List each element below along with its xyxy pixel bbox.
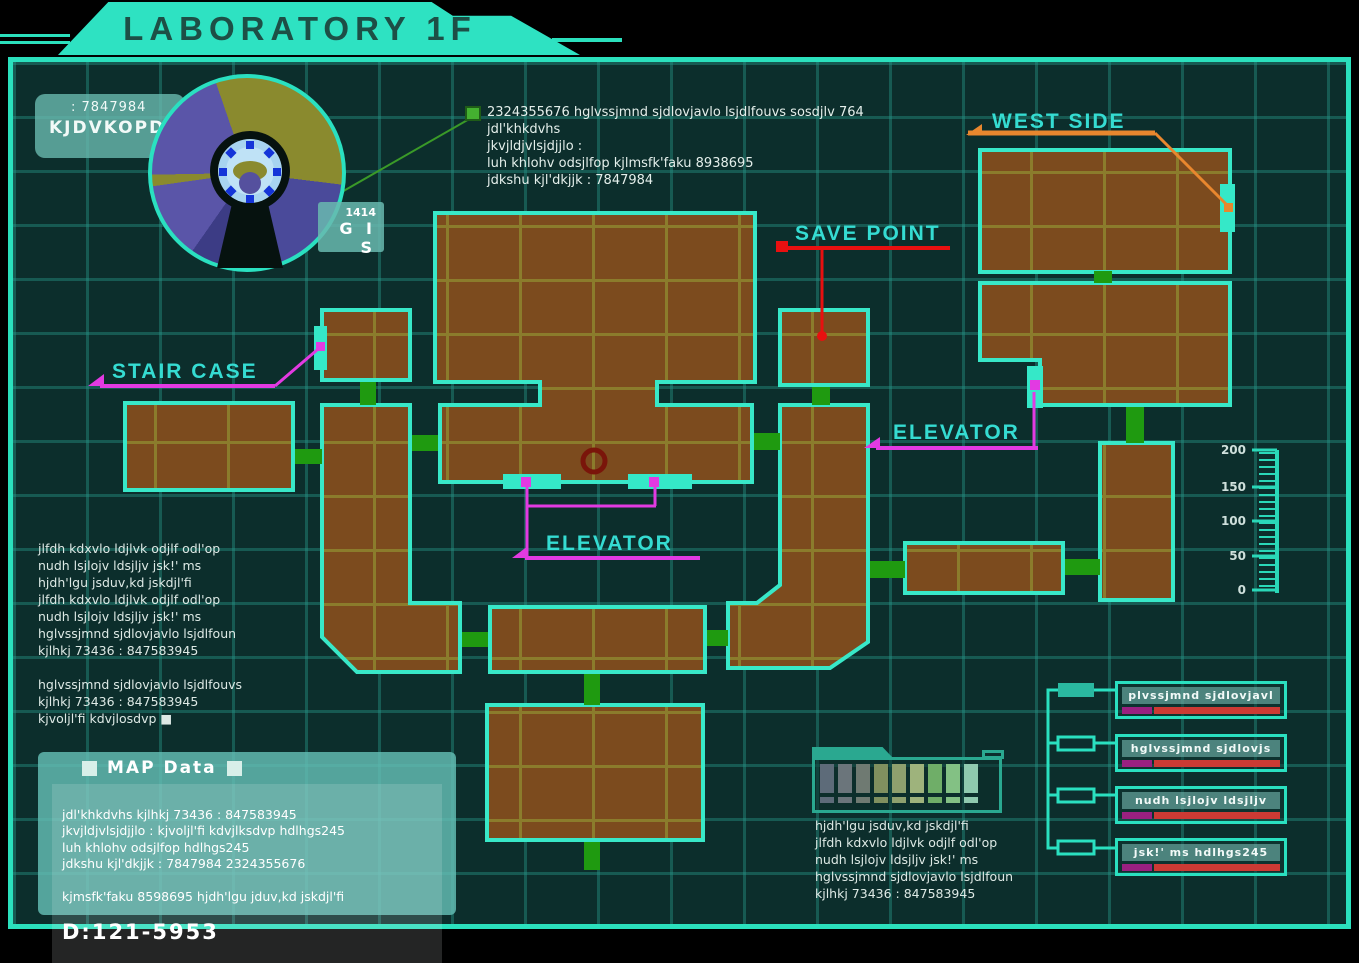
- radar-dial-pupil: [239, 172, 261, 194]
- banner-flank-line-left-1: [0, 34, 70, 37]
- radar-tick-n: [246, 141, 254, 149]
- stair-case-door-dot: [316, 342, 325, 351]
- legend-item: plvssjmnd sjdlovjavl: [1115, 681, 1287, 719]
- center-elevator-door-marker-2: [628, 474, 692, 489]
- room-stair-case: [322, 310, 410, 380]
- room-east-horizontal: [905, 543, 1063, 593]
- gis-badge-value: 1414: [318, 206, 376, 219]
- legend-item-bar: [1122, 760, 1280, 767]
- annotation-text: 2324355676 hglvssjmnd sjdlovjavlo lsjdlf…: [487, 104, 947, 189]
- legend-bar-red: [1154, 760, 1280, 767]
- legend-item: nudh lsjlojv ldsjljv: [1115, 786, 1287, 824]
- palette-swatch: [856, 797, 870, 803]
- palette-swatch: [874, 797, 888, 803]
- legend-item-label: nudh lsjlojv ldsjljv: [1122, 792, 1280, 809]
- map-data-body: jdl'khkdvhs kjlhkj 73436 : 847583945 jkv…: [52, 784, 442, 963]
- radar-keyhole-wedge: [217, 200, 283, 268]
- legend-item-bar: [1122, 864, 1280, 871]
- legend-bar-red: [1154, 812, 1280, 819]
- room-east-vertical: [1100, 443, 1173, 600]
- map-data-panel: MAP Data jdl'khkdvhs kjlhkj 73436 : 8475…: [38, 752, 456, 915]
- palette-swatch: [874, 764, 888, 793]
- palette-swatch: [892, 764, 906, 793]
- square-bullet-icon: [227, 761, 242, 776]
- radar-tick-e: [273, 168, 281, 176]
- label-stair-case: STAIR CASE: [112, 360, 258, 384]
- palette-swatch: [838, 764, 852, 793]
- room-bottom-lower: [487, 705, 703, 840]
- map-data-heading-text: MAP Data: [107, 758, 217, 778]
- map-data-id: D:121-5953: [62, 924, 432, 941]
- ruler-label-150: 150: [1208, 480, 1246, 494]
- room-far-left: [125, 403, 293, 490]
- ruler-label-100: 100: [1208, 514, 1246, 528]
- palette-swatch: [946, 797, 960, 803]
- gis-badge-label: G I S: [318, 219, 376, 257]
- banner-flank-line-left-2: [0, 41, 70, 44]
- legend-item: jsk!' ms hdlhgs245: [1115, 838, 1287, 876]
- label-save-point: SAVE POINT: [795, 222, 941, 246]
- legend-bar-purple: [1122, 760, 1152, 767]
- room-bottom-center: [490, 607, 705, 672]
- radar-tick-w: [219, 168, 227, 176]
- map-data-lines: jdl'khkdvhs kjlhkj 73436 : 847583945 jkv…: [62, 807, 432, 906]
- square-bullet-icon: [82, 761, 97, 776]
- palette-swatch: [892, 797, 906, 803]
- legend-bar-red: [1154, 864, 1280, 871]
- palette-swatch: [946, 764, 960, 793]
- palette-swatch: [928, 764, 942, 793]
- room-west-top: [980, 150, 1230, 272]
- legend-item-label: hglvssjmnd sjdlovjs: [1122, 740, 1280, 757]
- label-elevator-center: ELEVATOR: [546, 532, 673, 556]
- center-elevator-door-marker-1: [503, 474, 561, 489]
- legend-bar-purple: [1122, 812, 1152, 819]
- palette-swatch: [964, 764, 978, 793]
- ruler-label-200: 200: [1208, 443, 1246, 457]
- legend-item-label: jsk!' ms hdlhgs245: [1122, 844, 1280, 861]
- banner-flank-line-right: [552, 38, 622, 42]
- scale-ruler-minor-ticks: [1259, 452, 1276, 590]
- palette-swatch: [820, 797, 834, 803]
- palette-swatch: [910, 797, 924, 803]
- legend-item-bar: [1122, 707, 1280, 714]
- radar-tick-s: [246, 195, 254, 203]
- palette-swatch: [928, 797, 942, 803]
- page-title: LABORATORY 1F: [123, 10, 507, 48]
- left-info-text: jlfdh kdxvlo ldjlvk odjlf odl'op nudh ls…: [38, 540, 338, 727]
- room-save-point: [780, 310, 868, 385]
- label-west-side: WEST SIDE: [992, 110, 1126, 134]
- palette-swatch: [820, 764, 834, 793]
- room-west-mid: [980, 283, 1230, 405]
- legend-item-label: plvssjmnd sjdlovjavl: [1122, 687, 1280, 704]
- radar-id-code: : 7847984: [49, 100, 185, 115]
- gis-badge: 1414 G I S: [318, 202, 384, 252]
- palette-swatch: [964, 797, 978, 803]
- east-elevator-door-dot: [1030, 380, 1040, 390]
- compass-radar: [148, 74, 346, 272]
- room-central-hall: [435, 213, 755, 482]
- ruler-label-50: 50: [1208, 549, 1246, 563]
- palette-swatch: [838, 797, 852, 803]
- legend-connector-filled: [1058, 683, 1094, 697]
- palette-subsquares: [820, 793, 994, 803]
- ruler-label-0: 0: [1208, 583, 1246, 597]
- annotation-leader: [340, 107, 480, 193]
- palette-swatches: [820, 764, 994, 793]
- legend-item-bar: [1122, 812, 1280, 819]
- legend-bar-red: [1154, 707, 1280, 714]
- map-data-heading: MAP Data: [52, 758, 442, 778]
- palette-swatch: [856, 764, 870, 793]
- legend-bar-purple: [1122, 707, 1152, 714]
- legend-item: hglvssjmnd sjdlovjs: [1115, 734, 1287, 772]
- palette-caption-text: hjdh'lgu jsduv,kd jskdjl'fi jlfdh kdxvlo…: [815, 817, 1115, 902]
- legend-bar-purple: [1122, 864, 1152, 871]
- color-palette: [812, 757, 1002, 813]
- palette-swatch: [910, 764, 924, 793]
- label-elevator-east: ELEVATOR: [893, 421, 1020, 445]
